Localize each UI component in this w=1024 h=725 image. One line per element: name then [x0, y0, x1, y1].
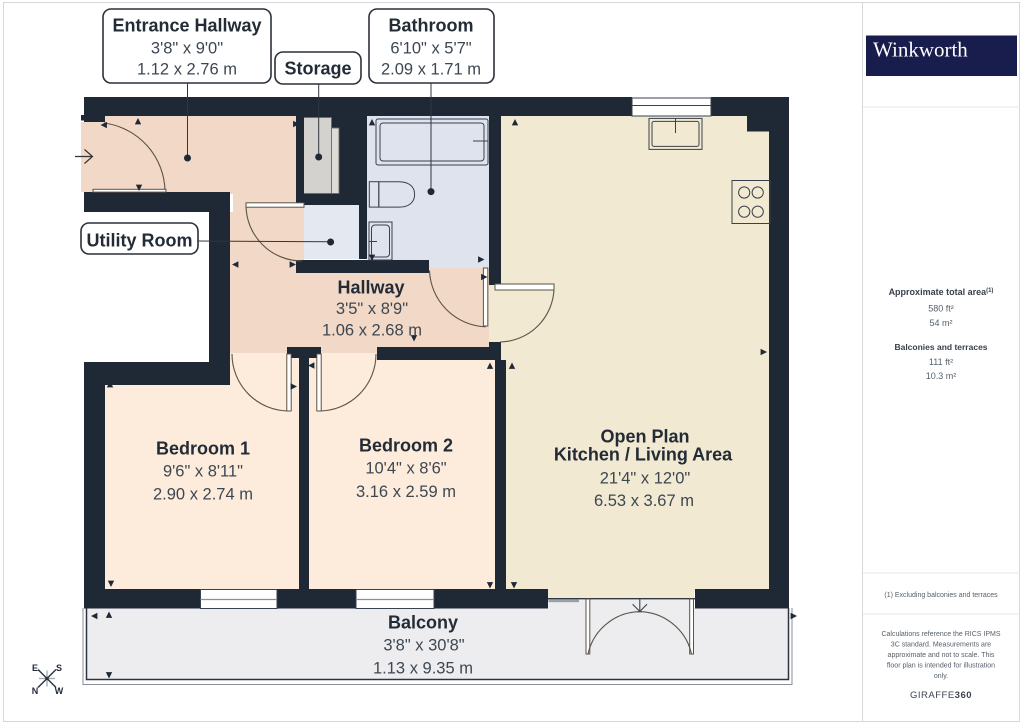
svg-text:Balconies and terraces: Balconies and terraces [894, 342, 987, 352]
svg-text:Kitchen / Living Area: Kitchen / Living Area [554, 445, 733, 465]
svg-text:1.06 x 2.68 m: 1.06 x 2.68 m [322, 322, 422, 340]
svg-text:9'6" x 8'11": 9'6" x 8'11" [163, 463, 243, 481]
svg-text:111 ft²: 111 ft² [929, 357, 953, 367]
svg-text:1.13 x 9.35 m: 1.13 x 9.35 m [373, 660, 473, 678]
svg-text:10.3 m²: 10.3 m² [926, 371, 957, 381]
svg-text:3.16 x 2.59 m: 3.16 x 2.59 m [356, 483, 456, 501]
svg-text:21'4" x 12'0": 21'4" x 12'0" [600, 470, 691, 488]
svg-text:Bedroom 2: Bedroom 2 [359, 436, 453, 456]
svg-text:6.53 x 3.67 m: 6.53 x 3.67 m [594, 492, 694, 510]
svg-text:W: W [55, 686, 64, 696]
svg-text:GIRAFFE360: GIRAFFE360 [910, 690, 972, 701]
svg-text:S: S [56, 663, 62, 673]
svg-text:Utility Room: Utility Room [87, 231, 193, 251]
svg-text:6'10" x 5'7": 6'10" x 5'7" [390, 40, 471, 58]
svg-text:Bedroom 1: Bedroom 1 [156, 439, 250, 459]
svg-text:Winkworth: Winkworth [873, 38, 968, 62]
svg-text:Calculations reference the RIC: Calculations reference the RICS IPMS [881, 631, 1000, 638]
svg-text:N: N [32, 686, 39, 696]
svg-text:2.09 x 1.71 m: 2.09 x 1.71 m [381, 61, 481, 79]
svg-text:floor plan is intended for ill: floor plan is intended for illustration [887, 663, 995, 670]
svg-text:Entrance Hallway: Entrance Hallway [112, 16, 261, 36]
svg-text:Bathroom: Bathroom [389, 16, 474, 36]
svg-text:Balcony: Balcony [388, 613, 458, 633]
svg-text:approximate and not to scale.: approximate and not to scale. This [888, 652, 995, 659]
svg-text:E: E [32, 663, 38, 673]
svg-text:Hallway: Hallway [337, 278, 404, 298]
svg-text:(1) Excluding balconies and te: (1) Excluding balconies and terraces [884, 592, 998, 599]
svg-text:Approximate total area(1): Approximate total area(1) [889, 287, 994, 297]
svg-text:Open Plan: Open Plan [600, 427, 689, 447]
svg-text:2.90 x 2.74 m: 2.90 x 2.74 m [153, 486, 253, 504]
svg-text:3C standard. Measurements are: 3C standard. Measurements are [891, 642, 991, 649]
svg-text:3'8" x 9'0": 3'8" x 9'0" [151, 40, 223, 58]
svg-text:10'4" x 8'6": 10'4" x 8'6" [365, 460, 446, 478]
svg-text:Storage: Storage [284, 59, 351, 79]
svg-text:580 ft²: 580 ft² [928, 304, 954, 314]
svg-text:3'8" x 30'8": 3'8" x 30'8" [383, 637, 464, 655]
svg-text:54 m²: 54 m² [929, 318, 952, 328]
svg-text:3'5" x 8'9": 3'5" x 8'9" [336, 300, 408, 318]
svg-text:only.: only. [934, 673, 948, 680]
svg-text:1.12 x 2.76 m: 1.12 x 2.76 m [137, 61, 237, 79]
